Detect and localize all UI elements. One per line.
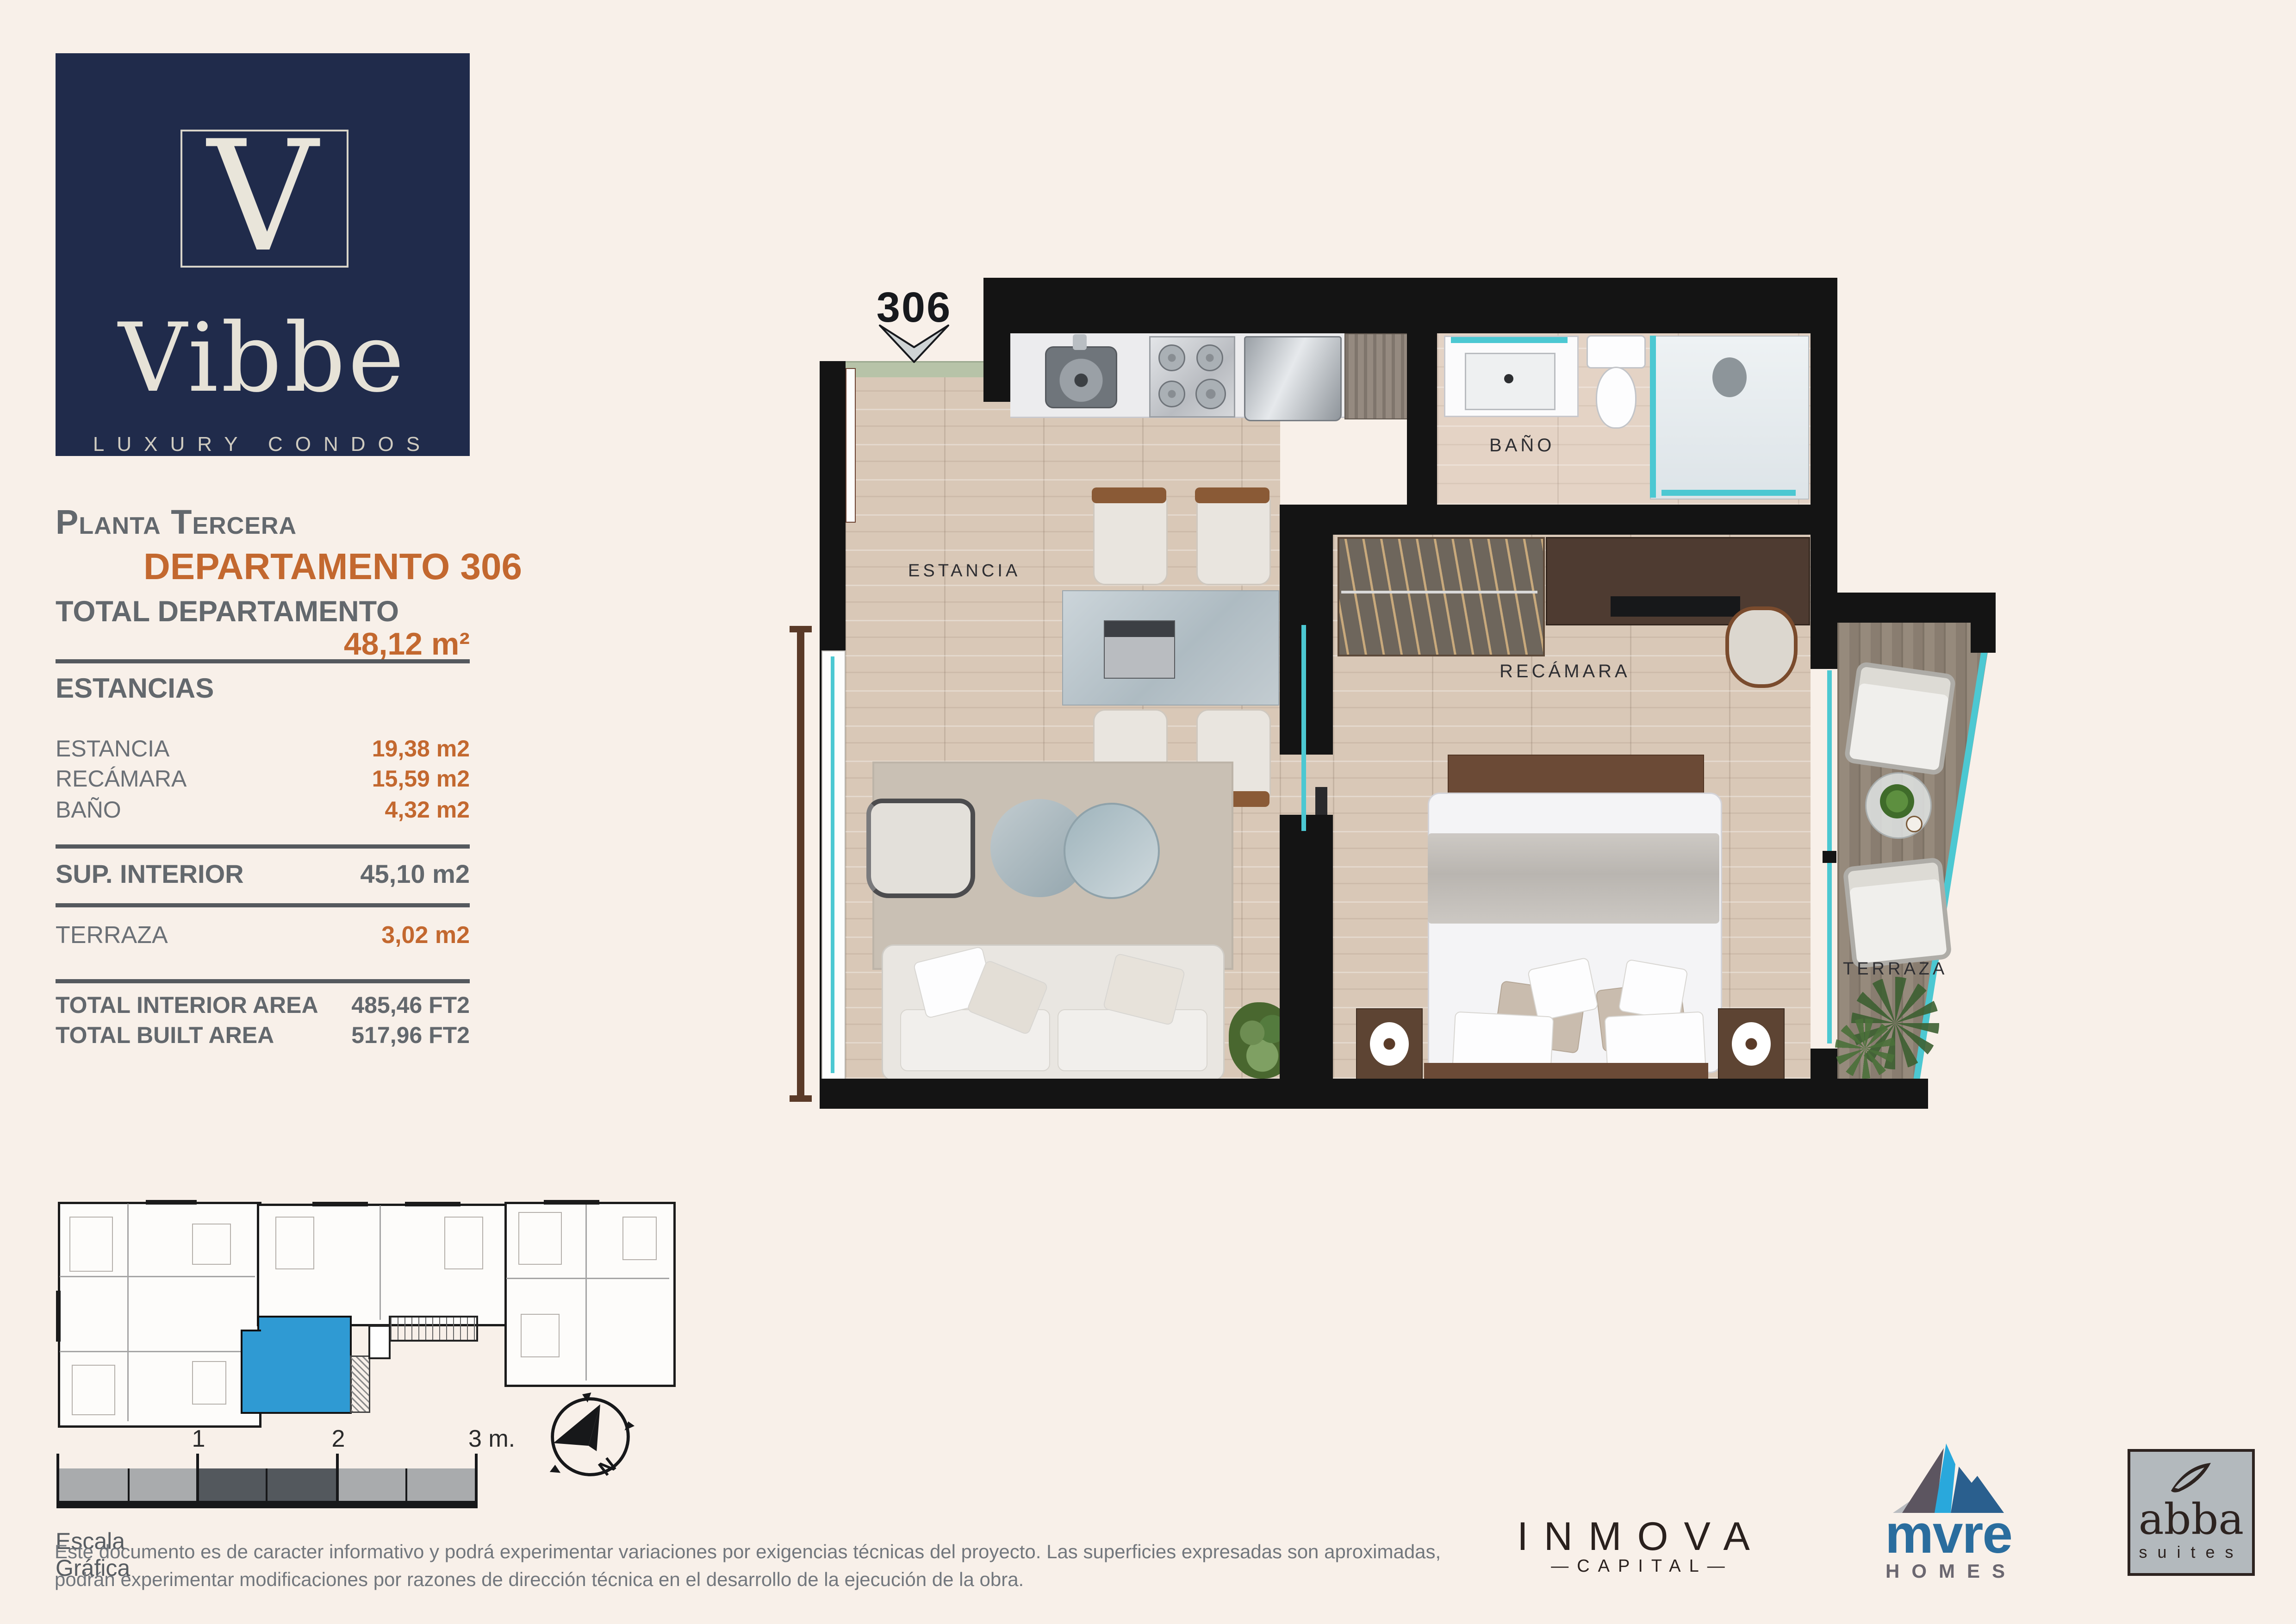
kitchen-sink [1045, 346, 1117, 408]
keyplan-unit-terrace-hatch [350, 1355, 370, 1413]
kitchen-fridge [1244, 336, 1342, 421]
north-compass-icon: N [545, 1393, 635, 1483]
toilet-bowl [1596, 367, 1636, 429]
bedroom-label: RECÁMARA [1500, 661, 1630, 682]
living-label: ESTANCIA [908, 561, 1020, 581]
inmova-logo: INMOVA —CAPITAL— [1517, 1514, 1767, 1574]
terrace-glass-door [1827, 862, 1832, 1043]
wall-entry-stub [983, 278, 1010, 402]
wall-partition-lower [1280, 815, 1333, 1079]
terrace-palm-icon [1835, 1018, 1895, 1079]
plan-sheet: V Vibbe LUXURY CONDOS Planta Tercera DEP… [0, 0, 2296, 1624]
dining-chair [1093, 490, 1168, 585]
terrace-table-plant-icon [1880, 784, 1914, 818]
kitchen-pantry-panel [1344, 333, 1409, 419]
inmova-sub-text: CAPITAL [1577, 1556, 1707, 1576]
keyplan-partition [585, 1204, 587, 1380]
scale-tick [475, 1454, 478, 1505]
shower-accent-left [1650, 336, 1656, 498]
keyplan-wall-tick [312, 1202, 368, 1206]
inmova-sub: —CAPITAL— [1517, 1556, 1767, 1576]
kitchen-faucet-icon [1073, 334, 1087, 350]
stove-burner [1158, 344, 1185, 371]
nightstand-left [1356, 1008, 1423, 1080]
closet-rod-icon [1341, 591, 1537, 593]
stove-burner [1195, 379, 1226, 409]
keyplan-stairs [389, 1316, 478, 1342]
coffee-table-small [1064, 803, 1160, 899]
scale-number: 2 [327, 1425, 350, 1453]
stove-burner [1196, 344, 1223, 371]
abba-name: abba [2130, 1494, 2252, 1544]
keyplan-partition [127, 1204, 129, 1421]
inmova-dash: — [1707, 1556, 1733, 1576]
wall-bottom [820, 1079, 1928, 1109]
bathroom-label: BAÑO [1489, 435, 1555, 456]
scale-segment [199, 1468, 268, 1501]
disclaimer-line-1: Este documento es de caracter informativ… [55, 1541, 1536, 1563]
chair-back-icon [1195, 487, 1269, 503]
wall-partition-upper [1280, 535, 1333, 755]
keyplan-unit-306-highlight [241, 1330, 261, 1414]
terrace-lounger [1842, 857, 1952, 968]
shower-head-icon [1712, 357, 1747, 397]
terrace-glass-door [1827, 670, 1832, 852]
keyplan-furniture [275, 1217, 314, 1269]
keyplan-furniture [444, 1217, 483, 1269]
keyplan-furniture [72, 1365, 115, 1415]
keyplan-furniture [518, 1212, 562, 1265]
toilet-tank [1587, 335, 1646, 369]
terrace-door-mullion [1823, 851, 1836, 863]
chair-back-icon [1092, 487, 1166, 503]
bedroom-closet [1338, 537, 1545, 656]
window-frame-marker-cap [790, 1095, 812, 1102]
inmova-name: INMOVA [1517, 1514, 1767, 1560]
terrace-label: TERRAZA [1843, 959, 1948, 979]
terrace-lounger [1844, 661, 1957, 776]
scale-segment [268, 1468, 336, 1501]
living-armchair [866, 799, 975, 898]
nightstand-right [1718, 1008, 1785, 1080]
bedroom-glass-door [1301, 625, 1306, 831]
bedroom-chair [1725, 606, 1798, 688]
window-left-glass [831, 656, 834, 1073]
keyplan-partition [380, 1206, 381, 1320]
bath-vanity-accent [1451, 337, 1568, 343]
disclaimer-line-2: podrán experimentar modificaciones por r… [55, 1568, 1536, 1591]
coffee-cup-icon [1906, 816, 1923, 832]
keyplan-elevator [368, 1325, 391, 1359]
bath-basin-drain-icon [1504, 374, 1513, 383]
keyplan-partition [60, 1276, 255, 1277]
wall-kitchen-bath-stub [1407, 333, 1437, 505]
mvre-logo: mvre HOMES [1879, 1443, 2018, 1578]
keyplan-furniture [69, 1217, 113, 1272]
keyplan-furniture [521, 1314, 560, 1357]
stove-burner [1158, 381, 1185, 407]
keyplan-partition [506, 1278, 669, 1279]
wall-right-bedroom-bottom [1811, 1049, 1837, 1109]
bed-footboard [1424, 1063, 1708, 1079]
laptop-icon [1104, 620, 1175, 679]
wall-terrace-top [1811, 593, 1996, 623]
compass-n-label: N [594, 1453, 620, 1480]
scale-segment [130, 1468, 196, 1501]
scale-segment [407, 1468, 475, 1501]
keyplan-furniture [622, 1217, 657, 1260]
bed-blanket [1428, 833, 1719, 924]
keyplan-wall-tick [544, 1200, 599, 1205]
abba-leaf-icon [2168, 1462, 2215, 1498]
scale-number: 1 [187, 1425, 210, 1453]
console-tv-icon [1611, 596, 1740, 617]
window-frame-marker [797, 630, 804, 1102]
abba-logo: abba suites [2128, 1449, 2255, 1576]
scale-number: 3 m. [468, 1425, 533, 1453]
mvre-name: mvre [1879, 1503, 2018, 1566]
keyplan-wall-tick [405, 1202, 460, 1206]
keyplan-unit-306-highlight [257, 1316, 352, 1414]
wall-below-bath [1280, 505, 1837, 535]
shower-accent-bottom [1661, 490, 1796, 496]
wall-right-bath [1811, 278, 1837, 535]
window-frame-marker-cap [790, 626, 812, 632]
wall-top [1010, 278, 1837, 333]
entry-door-leaf [846, 368, 856, 523]
speaker-icon [1732, 1022, 1771, 1066]
keyplan-furniture [192, 1361, 226, 1405]
sofa-seat [1058, 1009, 1207, 1071]
inmova-dash: — [1551, 1556, 1577, 1576]
keyplan-furniture [192, 1224, 231, 1265]
keyplan-wall-tick [146, 1200, 197, 1205]
scale-segment [339, 1468, 407, 1501]
scale-segment [59, 1468, 130, 1501]
keyplan-wall-tick [56, 1291, 61, 1342]
speaker-icon [1370, 1022, 1409, 1066]
mvre-sub: HOMES [1882, 1560, 2021, 1582]
wall-terrace-corner [1971, 623, 1996, 653]
abba-sub: suites [2130, 1543, 2252, 1562]
keyplan-partition [60, 1351, 255, 1352]
entry-chevron-icon [878, 324, 950, 364]
scale-baseline [56, 1501, 478, 1508]
dining-chair [1196, 490, 1271, 585]
